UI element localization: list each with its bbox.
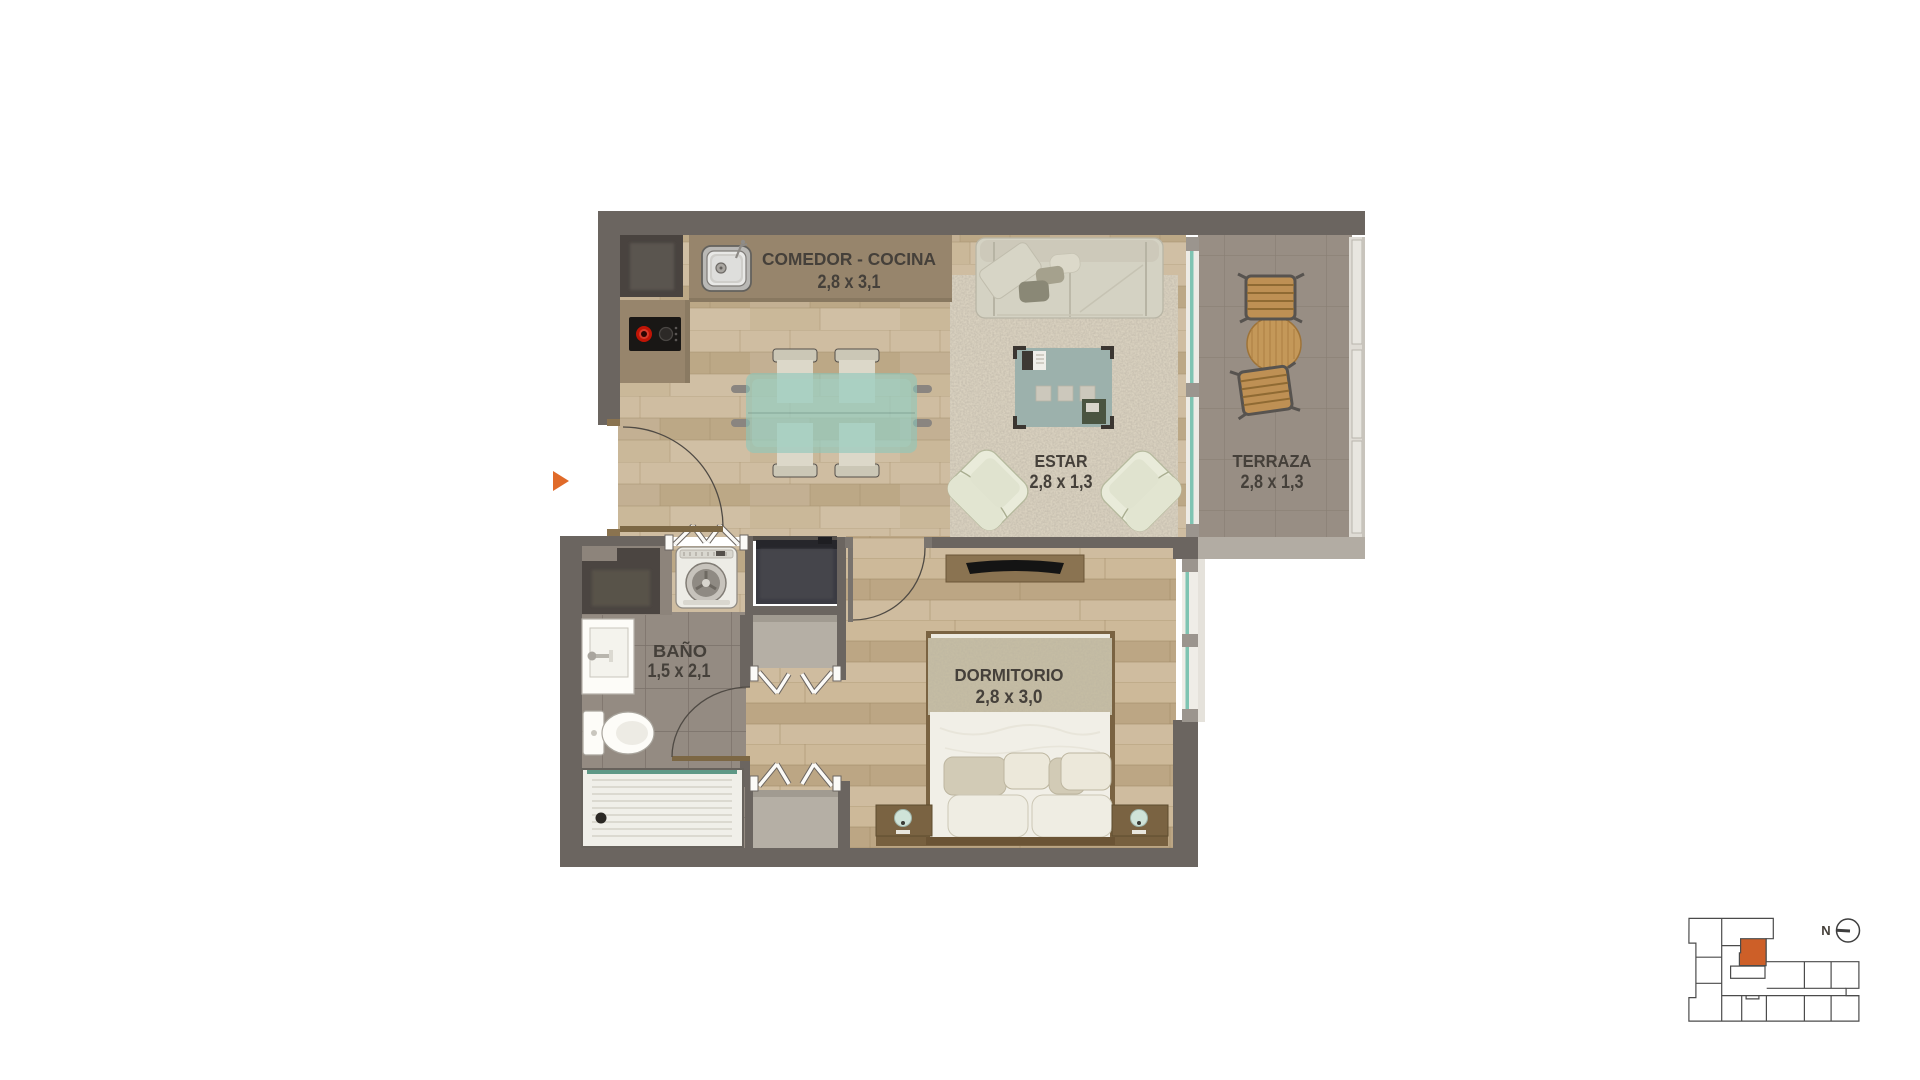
svg-text:ESTAR: ESTAR: [1035, 451, 1088, 471]
svg-text:2,8 x 1,3: 2,8 x 1,3: [1030, 472, 1093, 493]
svg-text:DORMITORIO: DORMITORIO: [955, 665, 1064, 685]
svg-text:BAÑO: BAÑO: [653, 640, 707, 661]
svg-text:COMEDOR - COCINA: COMEDOR - COCINA: [762, 249, 936, 269]
svg-text:2,8 x 3,1: 2,8 x 3,1: [818, 272, 881, 293]
svg-text:N: N: [1821, 923, 1830, 938]
svg-text:1,5 x 2,1: 1,5 x 2,1: [648, 661, 711, 682]
svg-text:TERRAZA: TERRAZA: [1233, 451, 1312, 471]
svg-text:2,8 x 1,3: 2,8 x 1,3: [1241, 472, 1304, 493]
svg-text:2,8 x 3,0: 2,8 x 3,0: [976, 687, 1043, 708]
